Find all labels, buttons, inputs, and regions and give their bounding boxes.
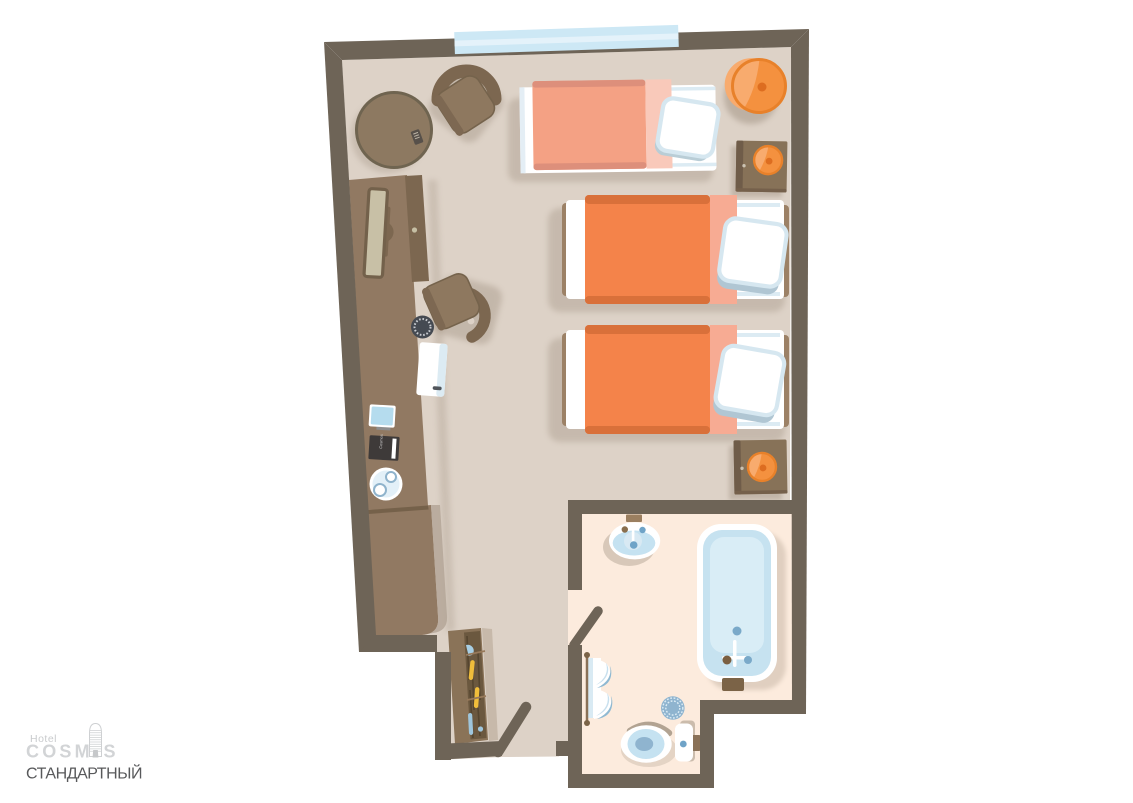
svg-text:СТАНДАРТНЫЙ: СТАНДАРТНЫЙ [26,764,142,783]
svg-text:Cosmos: Cosmos [378,434,384,449]
svg-text:S: S [104,742,116,762]
svg-text:COSM: COSM [26,742,93,762]
